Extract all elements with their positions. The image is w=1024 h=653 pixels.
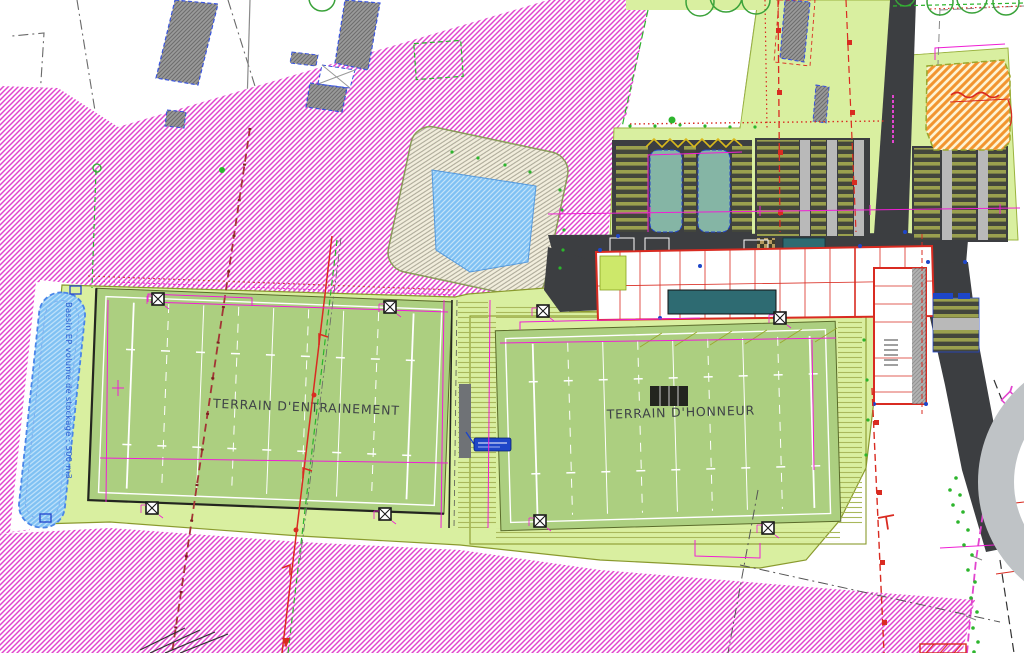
terrace bbox=[668, 290, 776, 314]
parking-block-center bbox=[755, 138, 870, 238]
honneur-field: TERRAIN D'HONNEUR bbox=[495, 321, 840, 530]
building bbox=[156, 0, 218, 85]
training-field: TERRAIN D'ENTRAINEMENT bbox=[88, 288, 452, 514]
site-plan-svg: Bassin EP volume de stockage : 500 m3 TE… bbox=[0, 0, 1024, 653]
clubhouse-east-wing bbox=[874, 268, 926, 404]
site-plan-canvas: Bassin EP volume de stockage : 500 m3 TE… bbox=[0, 0, 1024, 653]
building bbox=[165, 110, 186, 128]
spectator-wall bbox=[459, 384, 471, 458]
callout-box bbox=[474, 438, 511, 451]
building bbox=[306, 83, 347, 112]
red-tee-symbol bbox=[878, 515, 894, 530]
basin-ep-label: Bassin EP volume de stockage : 500 m3 bbox=[64, 302, 74, 479]
patio bbox=[600, 256, 626, 290]
parking-block-east bbox=[912, 146, 1008, 242]
tree-icon bbox=[309, 0, 335, 11]
retention-pond bbox=[432, 170, 536, 272]
bbq-grid-icon bbox=[650, 386, 688, 406]
pond-parcel bbox=[384, 123, 571, 301]
blue-marker-icon bbox=[933, 293, 953, 299]
building bbox=[290, 52, 318, 66]
orange-reserve-zone bbox=[926, 60, 1012, 150]
east-mini-parking bbox=[933, 293, 979, 352]
